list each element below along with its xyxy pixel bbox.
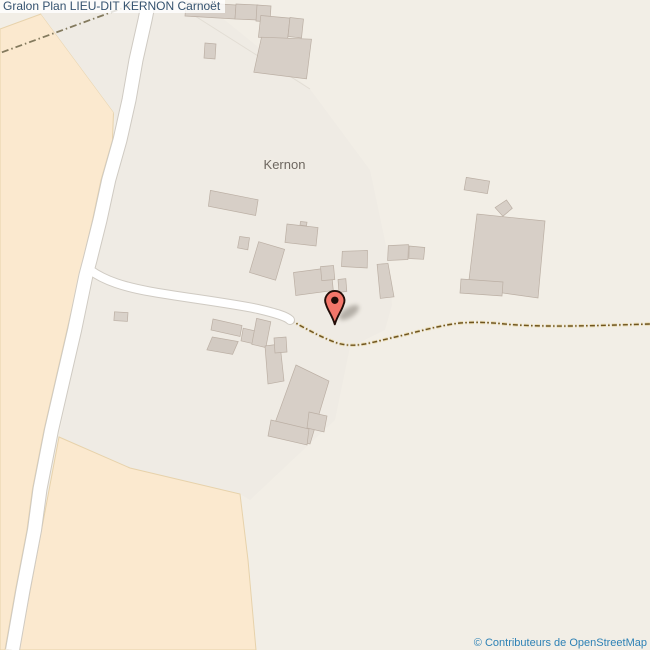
svg-text:Kernon: Kernon bbox=[264, 157, 306, 172]
